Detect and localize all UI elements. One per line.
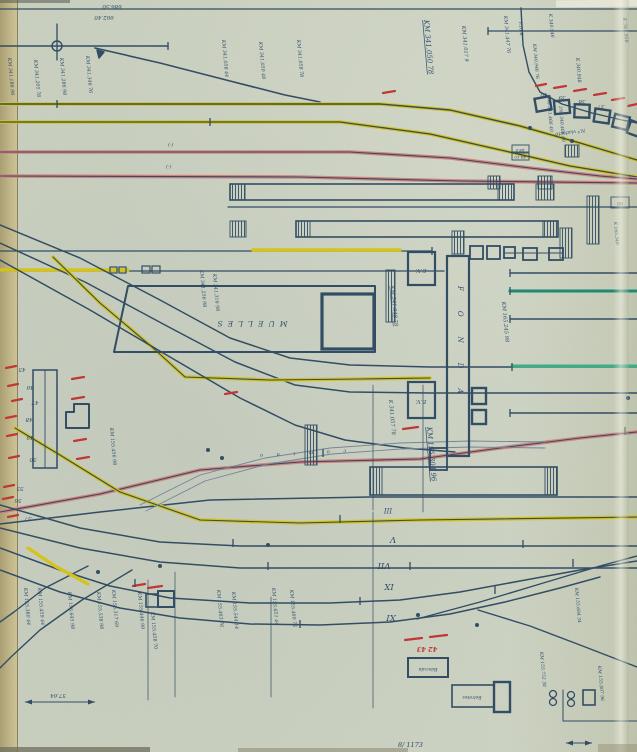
hatched-block	[538, 176, 552, 189]
hatched-block	[305, 425, 317, 465]
red-mark	[72, 397, 84, 399]
signal-dot	[570, 139, 574, 143]
hut-44-b	[158, 591, 174, 607]
label-km-155-380-44: KM 155.380 44	[22, 587, 31, 626]
small-square-3	[504, 247, 515, 258]
red-mark	[8, 515, 18, 517]
label-km-341-205-78: KM 341.205 78	[32, 59, 41, 98]
label-662-40: 662.40	[94, 14, 114, 20]
bottom-square-hut	[583, 690, 595, 705]
label-56: 56	[14, 497, 21, 503]
branch-down-right	[478, 610, 637, 667]
label-e-v-: E.V.	[415, 398, 427, 404]
label-k-341-958: K 341.958	[621, 17, 629, 43]
road-edge-lower	[146, 447, 545, 511]
red-mark	[594, 93, 606, 95]
corner-curve-2	[0, 570, 132, 668]
label-km-155-304-96: KM 155.304 96	[425, 425, 438, 482]
l-shaped-building	[66, 404, 89, 428]
water-column	[568, 700, 575, 707]
small-square-2	[487, 246, 500, 259]
fonda-side-hut-1	[472, 388, 486, 404]
label-muelles: MUELLES	[212, 319, 288, 328]
red-mark	[12, 399, 22, 401]
label-km-341-346-76: KM 341.346 76	[84, 55, 93, 94]
label-38: 38	[578, 98, 585, 104]
label-e-v-: E.V.	[415, 267, 427, 273]
label-iii: III	[384, 506, 394, 514]
label-39: 39	[558, 94, 565, 100]
label-b-scula: Báscula	[418, 666, 438, 673]
signal-dot	[626, 396, 630, 400]
label-vii: VII	[377, 560, 390, 570]
top-diagonal-track	[95, 48, 320, 102]
track-v	[0, 505, 637, 546]
label-48-10: 48.10	[514, 155, 527, 160]
signal-dot	[266, 543, 270, 547]
dimension-arrowhead	[566, 741, 573, 746]
label-km-155-459-44: KM 155.459 44	[36, 587, 45, 626]
label-km-341-447-76: KM 341.447 76	[502, 15, 511, 54]
label-km-340-946-76: KM 340.946 76	[531, 43, 540, 80]
track-xi	[0, 570, 600, 625]
label-c-a-m-i-n-o: c a m i n o	[254, 448, 347, 459]
small-square-4	[523, 248, 537, 260]
label-40: 40	[540, 91, 548, 97]
label-37: 37	[597, 103, 604, 109]
label-45: 45	[18, 366, 26, 372]
label-km-341-316-98: KM 341.316 98	[211, 273, 220, 312]
red-mark	[72, 377, 84, 379]
label-km-155-807-96: KM 155.807 96	[596, 665, 605, 702]
dimension-arrowhead	[25, 700, 32, 705]
label-ix: IX	[383, 581, 394, 591]
red-mark	[628, 104, 637, 106]
red-mark	[7, 434, 17, 436]
label-km-155-752-38: KM 155.752 38	[538, 651, 547, 688]
label-km-165-245-98: KM 165.245 98	[500, 301, 510, 344]
label-49: 49	[26, 434, 34, 440]
label-686-50: 686.50	[102, 3, 122, 9]
label-km-341-058-44: KM 341.058 44	[220, 39, 229, 78]
label-8-1173: 8/ 1173	[398, 741, 423, 749]
hatched-block	[488, 176, 500, 189]
label-48: 48	[25, 416, 33, 422]
label-42-43: 42 43	[416, 645, 437, 653]
hatched-block	[560, 228, 572, 258]
label-46: 46	[26, 384, 34, 390]
label-km-341-050-78: KM 341.050 78	[422, 18, 435, 75]
red-mark	[6, 416, 16, 418]
label-km-341-186-98: KM 341.186 98	[6, 57, 15, 96]
small-square-1	[470, 246, 483, 259]
label-k-165-340: K 165.340	[612, 221, 619, 245]
hatched-block	[230, 221, 246, 237]
hatched-block	[587, 196, 599, 244]
label-km-341-256-98: KM 341.256 98	[198, 269, 207, 308]
hatched-block	[296, 221, 310, 237]
label-km-155-684-34: KM 155.684 34	[573, 587, 582, 624]
label-v: V	[389, 534, 396, 544]
label-57: 57	[24, 515, 31, 521]
label-55: 55	[16, 485, 23, 491]
label-57-64: 57.64	[50, 692, 66, 698]
label-km-155-460-76: KM 155.460 76	[288, 589, 297, 628]
hatched-block	[370, 467, 382, 495]
label-k-340-946: K 340.946	[547, 13, 555, 38]
hatched-block	[230, 184, 245, 200]
viaduct-span	[612, 114, 630, 130]
label-km-155-458-70: KM 155.458 70	[149, 611, 158, 650]
red-mark	[405, 638, 422, 640]
red-mark	[403, 427, 418, 429]
water-column	[550, 699, 557, 706]
signal-dot	[158, 564, 162, 568]
label-47: 47	[31, 399, 39, 405]
switch-arrow	[97, 50, 104, 58]
track-plan-drawing: KM 341.186 98KM 341.205 78KM 341.286 98K…	[0, 0, 637, 752]
label--: (·)	[166, 163, 172, 170]
label-k-340-948: K 340.948	[574, 57, 582, 83]
red-mark	[612, 98, 624, 100]
label-48-0: 48.0	[515, 148, 525, 153]
red-mark	[554, 86, 566, 88]
red-mark	[9, 456, 19, 458]
signal-dot	[96, 570, 100, 574]
hatched-block	[565, 145, 579, 157]
red-mark	[4, 485, 14, 487]
label-fonda: FONDA	[456, 285, 464, 413]
branch-up-right	[417, 556, 637, 619]
label-p-10-b: P.10'B	[517, 21, 524, 37]
scanned-track-plan: Plano de vías de estación — scanned rail…	[0, 0, 637, 752]
label-60: 60	[617, 200, 623, 205]
crossing-mark-2b	[152, 266, 160, 273]
platform-strip-1	[230, 184, 514, 200]
crossing-mark-2a	[142, 266, 150, 273]
fonda-side-hut-2	[472, 410, 486, 424]
red-mark	[536, 84, 546, 86]
red-mark	[3, 497, 13, 499]
label-km-155-538-98: KM 155.538 98	[95, 591, 104, 630]
label-km-155-456-98: KM 155.456 98	[108, 427, 117, 466]
red-mark	[383, 91, 395, 93]
red-mark	[6, 366, 16, 368]
red-mark	[430, 635, 447, 637]
label-retretes: Retretes	[462, 694, 483, 699]
fan-curve-1	[0, 225, 637, 367]
track-vii	[0, 528, 637, 568]
signal-dot	[206, 448, 210, 452]
signal-dot	[475, 623, 479, 627]
label-km-341-050-48: KM 341.050 48	[257, 41, 266, 80]
signal-dot	[528, 126, 532, 130]
red-mark	[148, 586, 162, 588]
corner-curve-yellow	[28, 548, 88, 584]
red-mark	[574, 89, 586, 91]
red-mark	[225, 392, 237, 394]
label-km-155-544-14: KM 155.544 14	[230, 591, 239, 630]
signal-dot	[416, 613, 420, 617]
muelle-cubierto	[322, 294, 374, 349]
red-mark	[8, 384, 18, 386]
label-km-155-446-99: KM 155.446 99	[136, 591, 145, 630]
water-column	[568, 692, 575, 699]
label-50: 50	[29, 456, 36, 462]
label--: (·)	[168, 141, 174, 148]
platform-strip-2	[296, 221, 558, 237]
label-km-341-286-98: KM 341.286 98	[58, 57, 67, 96]
retretes-annex	[494, 682, 510, 712]
label-km-341-017-9: KM 341.017 9	[460, 25, 469, 63]
signal-dot	[220, 456, 224, 460]
red-mark	[77, 457, 89, 459]
hatched-block	[452, 231, 464, 254]
label-k-341-057-78: K 341.057 78	[387, 399, 396, 436]
red-track-lower-highlight	[0, 432, 637, 512]
label-km-341-058-78: KM 341.058 78	[295, 39, 304, 78]
red-mark	[74, 439, 86, 441]
label-xi: XI	[386, 612, 397, 622]
dimension-arrowhead	[88, 700, 95, 705]
platform-strip-3	[370, 467, 557, 495]
hatched-block	[545, 467, 557, 495]
hatched-block	[543, 221, 558, 237]
dimension-arrowhead	[585, 741, 592, 746]
water-column	[550, 691, 557, 698]
